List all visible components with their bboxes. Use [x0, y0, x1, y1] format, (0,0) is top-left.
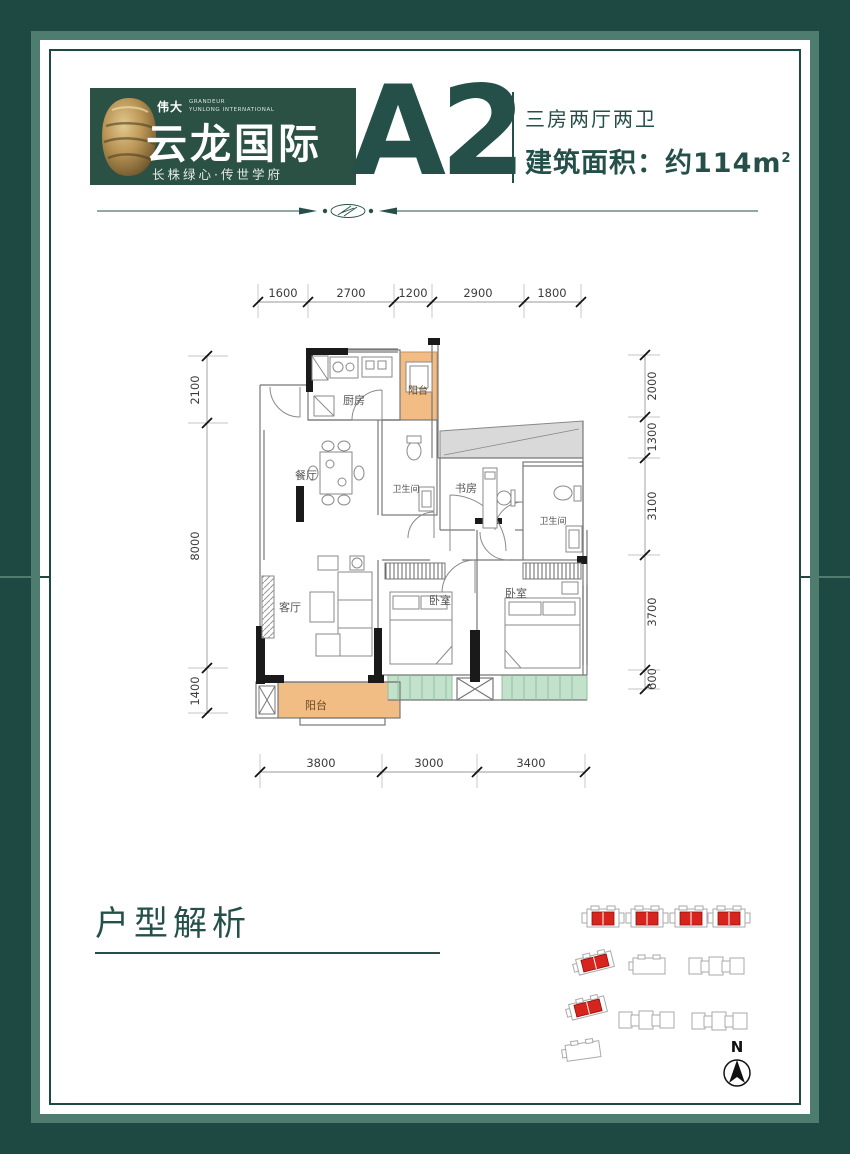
dim-label: 1200 — [398, 286, 427, 300]
dim-label: 2100 — [188, 375, 202, 404]
label-bath-b: 卫生间 — [539, 515, 566, 527]
equipment-box — [259, 686, 275, 714]
building-cluster-outline — [692, 1012, 747, 1030]
left-accent-line-dark — [40, 576, 51, 578]
north-arrow: N — [724, 1038, 750, 1086]
dim-label: 8000 — [188, 531, 202, 560]
site-row2 — [571, 948, 744, 976]
site-row3 — [564, 993, 747, 1030]
wardrobes — [385, 563, 581, 579]
dim-label: 1400 — [188, 676, 202, 705]
brand-name: 云龙国际 — [146, 110, 322, 170]
header-divider — [512, 92, 514, 183]
label-bed-b: 卧室 — [505, 586, 527, 600]
label-balcony-bottom: 阳台 — [305, 698, 327, 712]
building-highlighted — [626, 906, 668, 927]
brand-tagline: 长株绿心·传世学府 — [152, 164, 283, 183]
building-outline — [561, 1038, 601, 1062]
label-bed-a: 卧室 — [429, 593, 451, 607]
left-accent-line — [0, 576, 40, 578]
dim-label: 2700 — [336, 286, 365, 300]
unit-area: 建筑面积：约114m2 — [525, 141, 792, 180]
building-highlighted — [582, 906, 624, 927]
floor-plan: 厨房 阳台 餐厅 卫生间 书房 卫生间 客厅 卧室 卧室 阳台 — [180, 275, 660, 795]
right-accent-line-dark — [799, 576, 810, 578]
building-highlighted-tilted — [571, 948, 614, 976]
dim-label: 3000 — [414, 756, 443, 770]
poster-page: 伟大 GRANDEUR YUNLONG INTERNATIONAL 云龙国际 长… — [0, 0, 850, 1154]
dim-label: 1300 — [645, 422, 659, 451]
label-kitchen: 厨房 — [343, 394, 365, 407]
right-accent-line — [810, 576, 850, 578]
building-cluster-outline — [689, 957, 744, 975]
building-cluster-outline — [619, 1011, 674, 1029]
building-outline — [629, 955, 665, 974]
brand-logo: 伟大 GRANDEUR YUNLONG INTERNATIONAL 云龙国际 长… — [90, 88, 356, 185]
dim-label: 2000 — [645, 371, 659, 400]
label-balcony-top: 阳台 — [408, 384, 428, 397]
label-study: 书房 — [455, 482, 477, 495]
dim-label: 2900 — [463, 286, 492, 300]
label-dining: 餐厅 — [295, 468, 317, 482]
dim-label: 3700 — [645, 597, 659, 626]
dim-label: 3400 — [516, 756, 545, 770]
dim-label: 1800 — [537, 286, 566, 300]
dim-label: 1600 — [268, 286, 297, 300]
ornament-divider — [95, 202, 760, 220]
building-highlighted — [670, 906, 712, 927]
unit-info: 三房两厅两卫 建筑面积：约114m2 — [525, 103, 792, 180]
unit-code: A2 — [350, 70, 520, 194]
brand-en-line1: GRANDEUR — [189, 99, 225, 105]
north-label: N — [731, 1038, 744, 1056]
building-highlighted — [708, 906, 750, 927]
label-bath-a: 卫生间 — [392, 483, 419, 495]
site-row1 — [582, 906, 750, 927]
label-living: 客厅 — [279, 600, 301, 614]
building-highlighted-tilted — [564, 993, 607, 1021]
unit-area-text: 建筑面积：约114m — [525, 148, 782, 179]
unit-type: 三房两厅两卫 — [525, 103, 792, 132]
analysis-title: 户型解析 — [95, 896, 440, 954]
dim-label: 3800 — [306, 756, 335, 770]
site-row4 — [561, 1038, 601, 1062]
dim-label: 3100 — [645, 491, 659, 520]
site-plan: N — [555, 890, 785, 1095]
dim-label: 600 — [645, 668, 659, 690]
unit-area-sup: 2 — [782, 151, 792, 166]
